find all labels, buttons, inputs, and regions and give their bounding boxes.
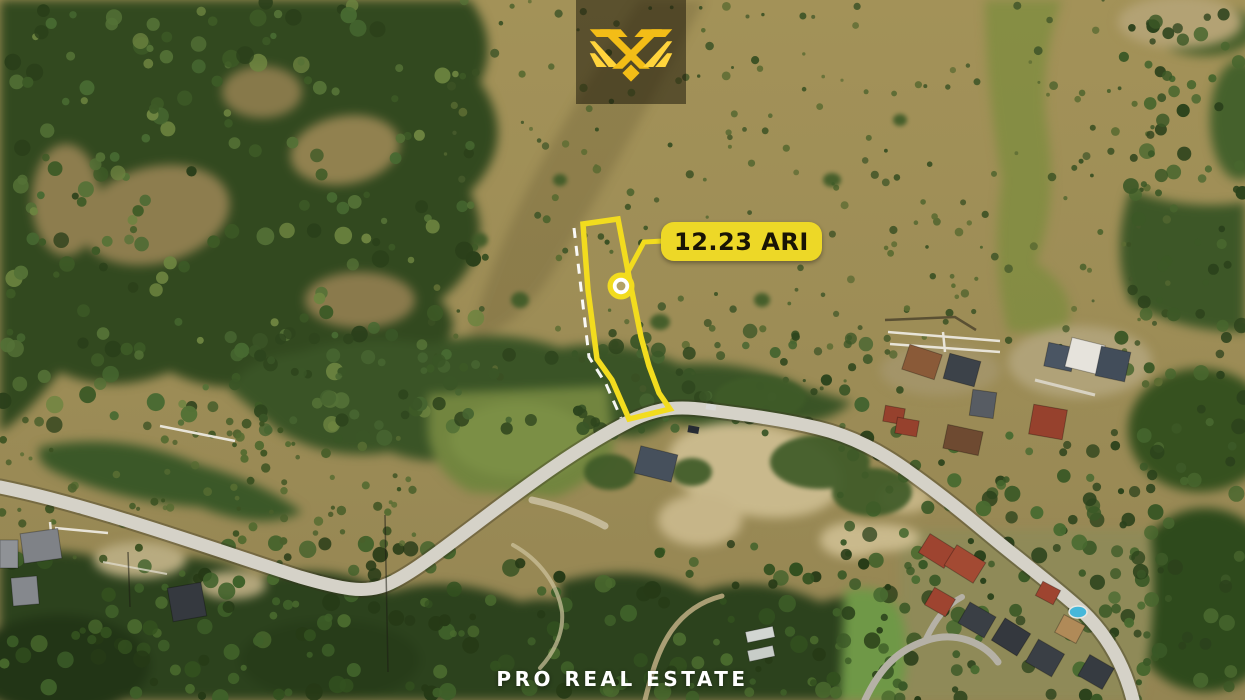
label-leader-line	[623, 241, 663, 281]
plot-marker-icon	[608, 273, 635, 300]
area-label: 12.23 ARI	[661, 222, 822, 261]
brand-logo	[576, 0, 686, 104]
brand-monogram-icon	[588, 24, 674, 86]
aerial-photo: 12.23 ARI PRO REAL ESTATE	[0, 0, 1245, 700]
watermark-text: PRO REAL ESTATE	[496, 667, 748, 691]
area-label-text: 12.23 ARI	[674, 228, 809, 256]
terrain-graphic	[0, 0, 1245, 700]
pool	[1069, 606, 1087, 618]
